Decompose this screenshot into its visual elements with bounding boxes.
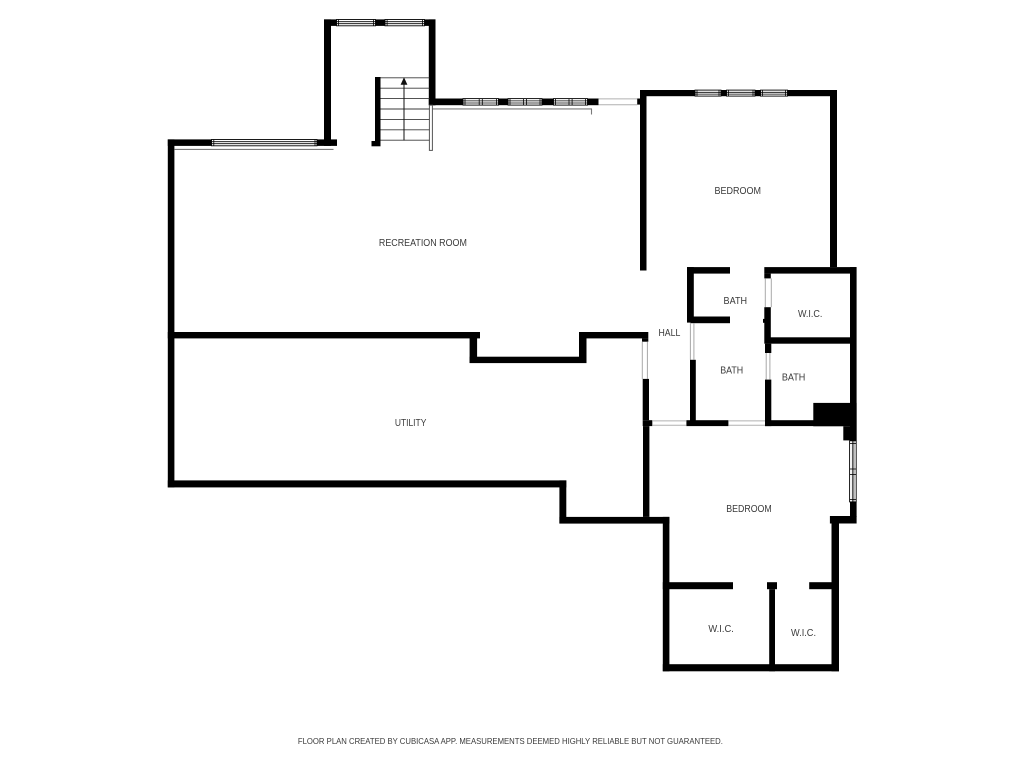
svg-text:BATH: BATH xyxy=(724,295,748,307)
svg-text:W.I.C.: W.I.C. xyxy=(798,308,823,320)
svg-text:BEDROOM: BEDROOM xyxy=(715,185,762,197)
svg-text:UTILITY: UTILITY xyxy=(395,417,427,429)
svg-text:W.I.C.: W.I.C. xyxy=(708,623,734,635)
svg-text:W.I.C.: W.I.C. xyxy=(791,627,816,639)
svg-text:BATH: BATH xyxy=(720,365,743,377)
svg-text:BEDROOM: BEDROOM xyxy=(726,503,772,515)
svg-text:FLOOR PLAN CREATED BY CUBICASA: FLOOR PLAN CREATED BY CUBICASA APP. MEAS… xyxy=(298,737,723,746)
svg-text:HALL: HALL xyxy=(659,327,681,339)
svg-text:BATH: BATH xyxy=(782,372,806,384)
svg-text:RECREATION ROOM: RECREATION ROOM xyxy=(379,237,467,249)
